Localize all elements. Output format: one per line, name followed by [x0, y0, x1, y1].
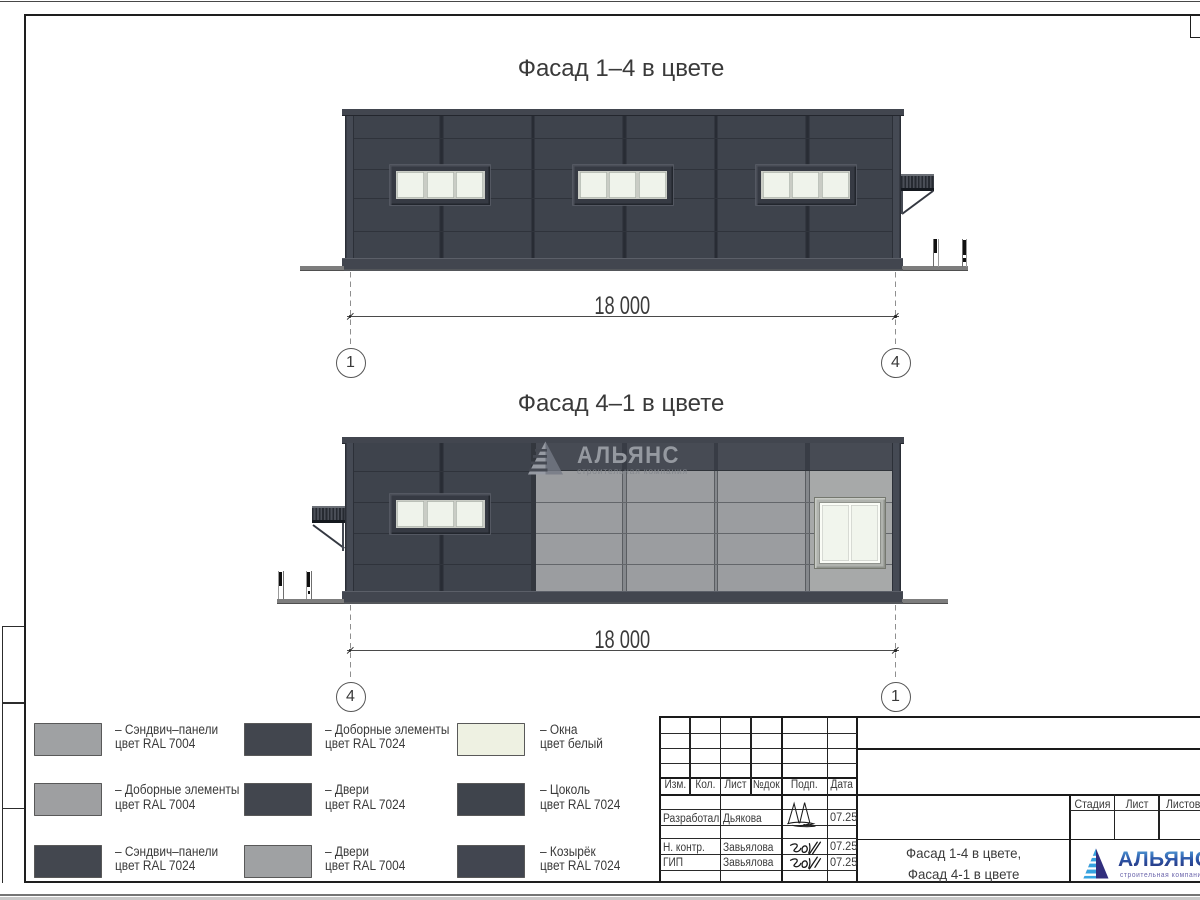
svg-text:АЛЬЯНС: АЛЬЯНС	[1118, 848, 1200, 871]
